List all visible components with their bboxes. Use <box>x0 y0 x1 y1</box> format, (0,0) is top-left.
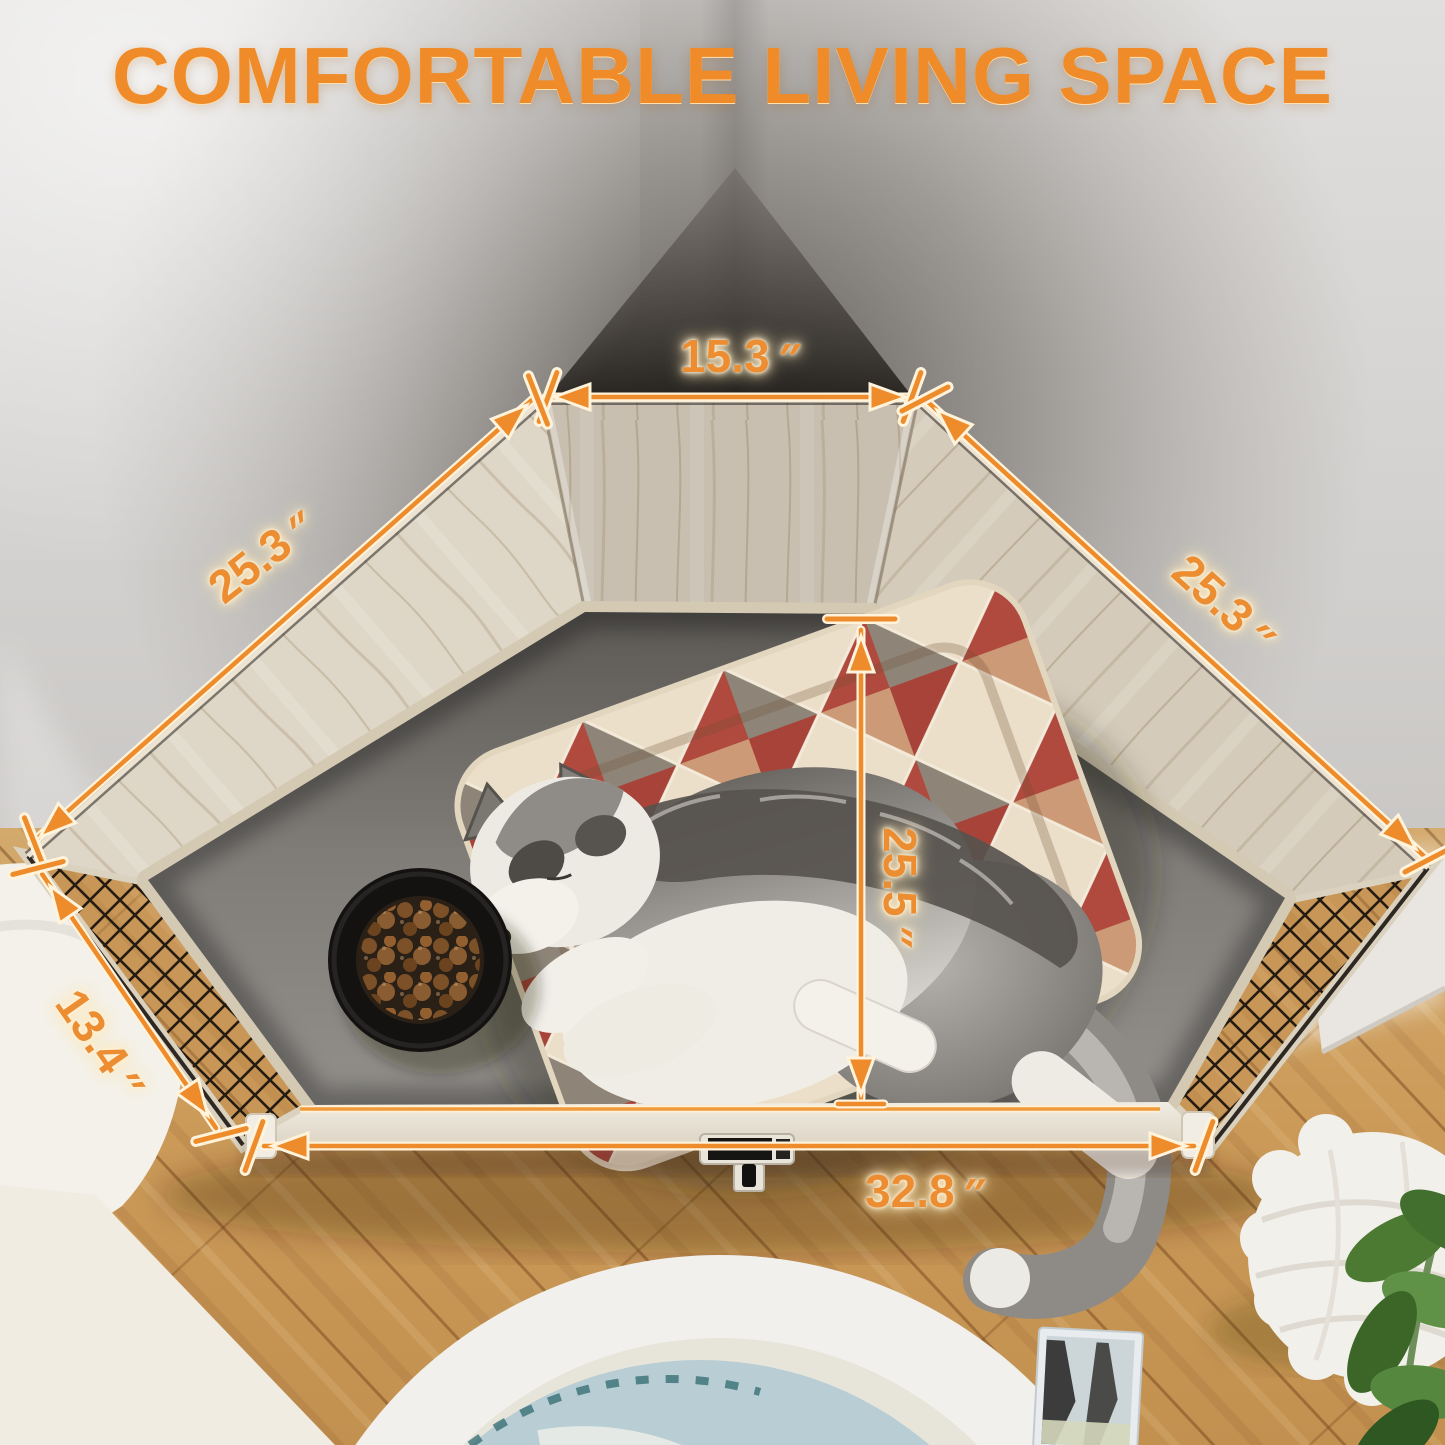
dimension-label-inner-depth: 25.5″ <box>873 827 927 943</box>
dimension-label-front-width: 32.8″ <box>865 1164 981 1218</box>
headline: COMFORTABLE LIVING SPACE <box>0 30 1445 122</box>
dimension-label-back-width: 15.3″ <box>680 329 796 383</box>
magazine <box>1033 1327 1143 1445</box>
scene-art <box>0 0 1445 1445</box>
product-scene: COMFORTABLE LIVING SPACE 15.3″ 25.3″ 25.… <box>0 0 1445 1445</box>
